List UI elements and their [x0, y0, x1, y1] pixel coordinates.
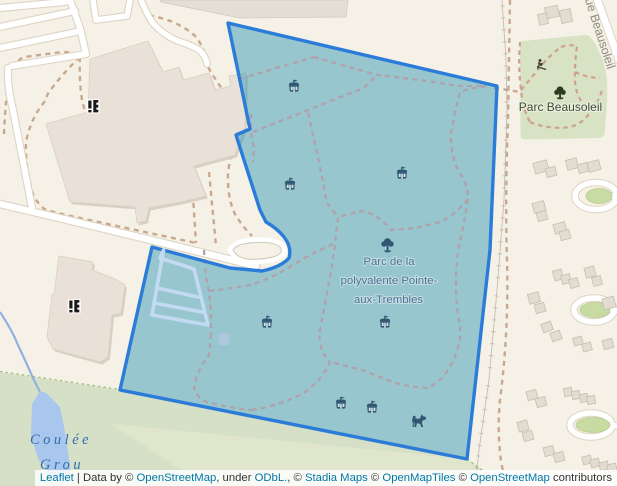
svg-text:Parc de la: Parc de la [363, 256, 415, 268]
svg-text:Coulée: Coulée [30, 432, 92, 448]
svg-text:polyvalente Pointe-: polyvalente Pointe- [341, 275, 438, 287]
svg-text:aux-Trembles: aux-Trembles [354, 294, 424, 306]
svg-text:Parc Beausoleil: Parc Beausoleil [519, 100, 602, 114]
